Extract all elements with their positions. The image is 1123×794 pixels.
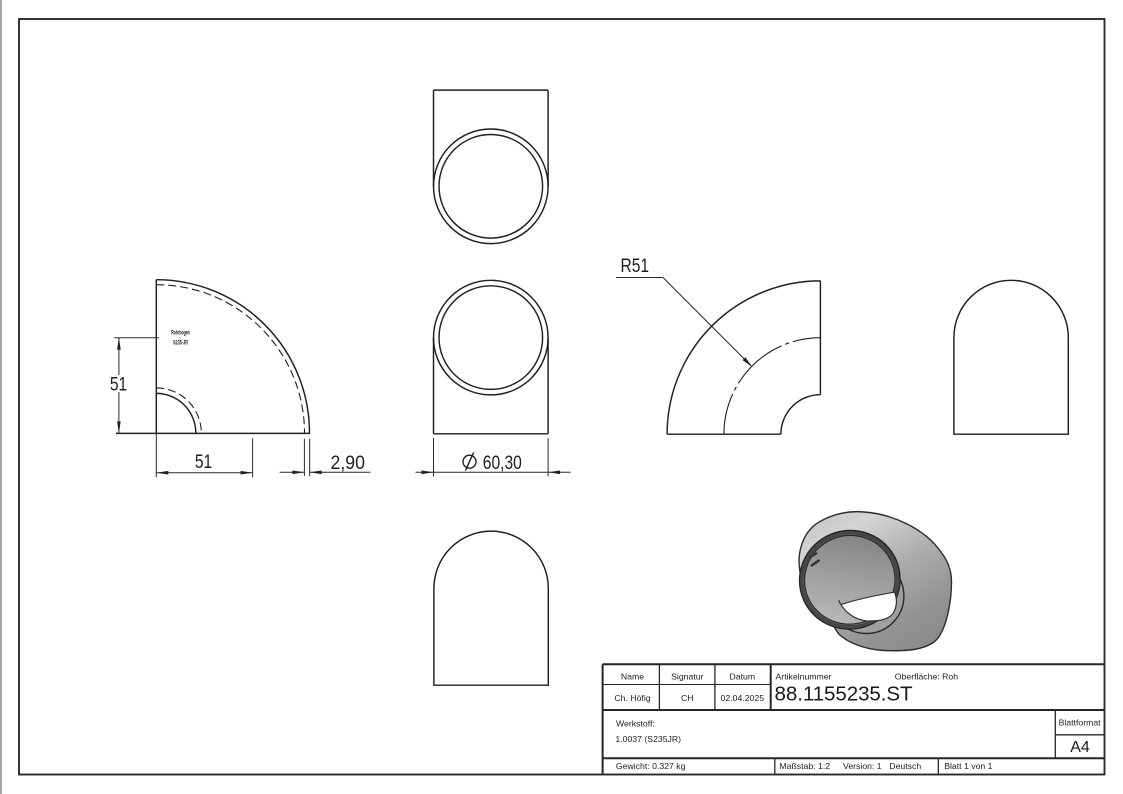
svg-text:51: 51 [195, 451, 212, 473]
svg-text:R51: R51 [621, 255, 650, 277]
svg-text:Rohrbogen: Rohrbogen [171, 330, 190, 337]
svg-text:CH: CH [681, 693, 694, 703]
svg-text:Oberfläche: Roh: Oberfläche: Roh [895, 672, 958, 682]
svg-text:Ch. Höfig: Ch. Höfig [614, 693, 650, 703]
svg-text:Blattformat: Blattformat [1059, 718, 1102, 728]
svg-text:Gewicht: 0.327 kg: Gewicht: 0.327 kg [616, 761, 686, 771]
svg-text:S235-JR: S235-JR [173, 340, 188, 347]
svg-text:Name: Name [621, 672, 644, 682]
svg-text:60,30: 60,30 [483, 452, 522, 474]
svg-text:Version: 1: Version: 1 [843, 761, 882, 771]
svg-text:Datum: Datum [730, 672, 756, 682]
svg-text:1.0037 (S235JR): 1.0037 (S235JR) [615, 734, 681, 744]
svg-text:2,90: 2,90 [331, 451, 365, 473]
svg-text:51: 51 [110, 373, 127, 395]
svg-text:A4: A4 [1070, 739, 1090, 756]
svg-text:Signatur: Signatur [671, 672, 703, 682]
svg-text:Maßstab: 1:2: Maßstab: 1:2 [779, 761, 830, 771]
svg-text:02.04.2025: 02.04.2025 [721, 693, 765, 703]
svg-text:Blatt 1 von 1: Blatt 1 von 1 [944, 761, 992, 771]
svg-text:Werkstoff:: Werkstoff: [616, 719, 655, 729]
svg-text:Deutsch: Deutsch [889, 761, 921, 771]
svg-text:88.1155235.ST: 88.1155235.ST [775, 683, 914, 706]
svg-text:Artikelnummer: Artikelnummer [776, 672, 832, 682]
